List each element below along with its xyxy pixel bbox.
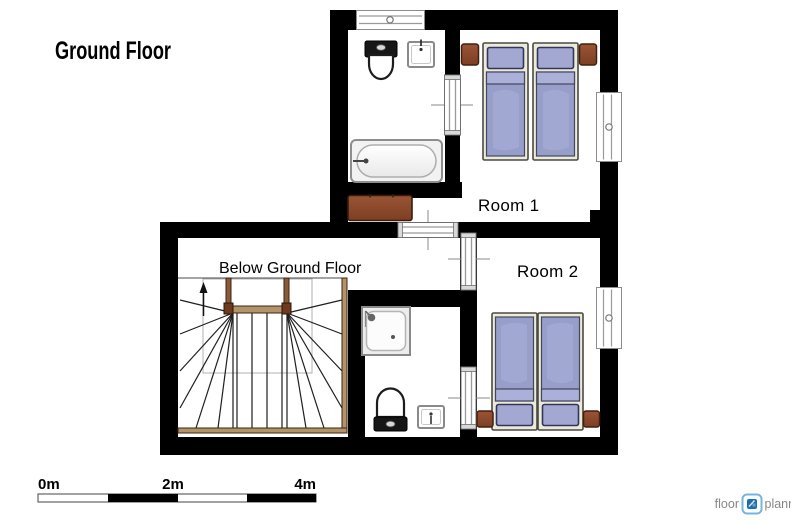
room2-label: Room 2 [517, 262, 578, 281]
stairwell: Below Ground Floor [178, 260, 362, 433]
up-arrow-icon [200, 282, 208, 316]
nightstand-symbol [584, 411, 600, 427]
stair-newel-post [282, 303, 291, 314]
floor-plan-canvas: Room 1 Room 2 [0, 0, 791, 527]
toilet-symbol [374, 389, 407, 432]
sink-symbol [408, 40, 434, 68]
wall-bottom [160, 437, 618, 455]
bathtub-faucet-icon [364, 159, 369, 164]
scale-bar: 0m 2m 4m [38, 476, 316, 502]
window-handle-icon [606, 315, 612, 321]
wall-mid-left [160, 222, 398, 238]
floorplanner-logo: floor planner [715, 495, 791, 514]
page-title: Ground Floor [55, 37, 171, 65]
nightstand-symbol [462, 44, 479, 65]
scale-tick-0: 0m [38, 476, 60, 493]
stair-void-outline [203, 279, 312, 373]
room-2: Room 2 [477, 262, 600, 430]
window-bathroom [357, 11, 425, 30]
room1-label: Room 1 [478, 196, 539, 215]
nightstand-symbol [580, 44, 597, 65]
wall-mid-right [455, 222, 618, 238]
bathroom [351, 40, 442, 183]
sink-symbol [418, 406, 444, 428]
shower-symbol [362, 307, 410, 355]
wall-left-lower [160, 222, 178, 455]
shower-room [362, 307, 444, 431]
window-handle-icon [387, 17, 393, 23]
nightstand-symbol [477, 411, 493, 427]
scale-tick-2: 2m [162, 476, 184, 493]
logo-prefix: floor [715, 497, 739, 511]
bed-symbol [483, 43, 528, 160]
door-bathroom [431, 75, 473, 135]
logo-suffix: planner [765, 497, 791, 511]
stairwell-label: Below Ground Floor [219, 260, 362, 277]
wall-left-upper [330, 10, 348, 238]
toilet-symbol [365, 41, 397, 79]
window-handle-icon [606, 124, 612, 130]
window-room2 [597, 288, 622, 349]
bed-symbol [492, 313, 537, 430]
wall-shower-top [348, 290, 477, 307]
dresser-symbol [348, 194, 412, 221]
bathtub-symbol [351, 140, 442, 182]
wall-room-divider-stub [590, 210, 618, 224]
window-room1 [597, 93, 622, 162]
bed-symbol [533, 43, 578, 160]
stair-newel-post [224, 303, 233, 314]
shower-drain-icon [391, 335, 395, 339]
floor-plan-drawing: Room 1 Room 2 [0, 0, 791, 527]
scale-tick-4: 4m [294, 476, 316, 493]
floorplanner-logo-icon [743, 495, 762, 514]
bed-symbol [538, 313, 583, 430]
door-room2 [448, 233, 490, 290]
shower-head-icon [368, 314, 376, 322]
